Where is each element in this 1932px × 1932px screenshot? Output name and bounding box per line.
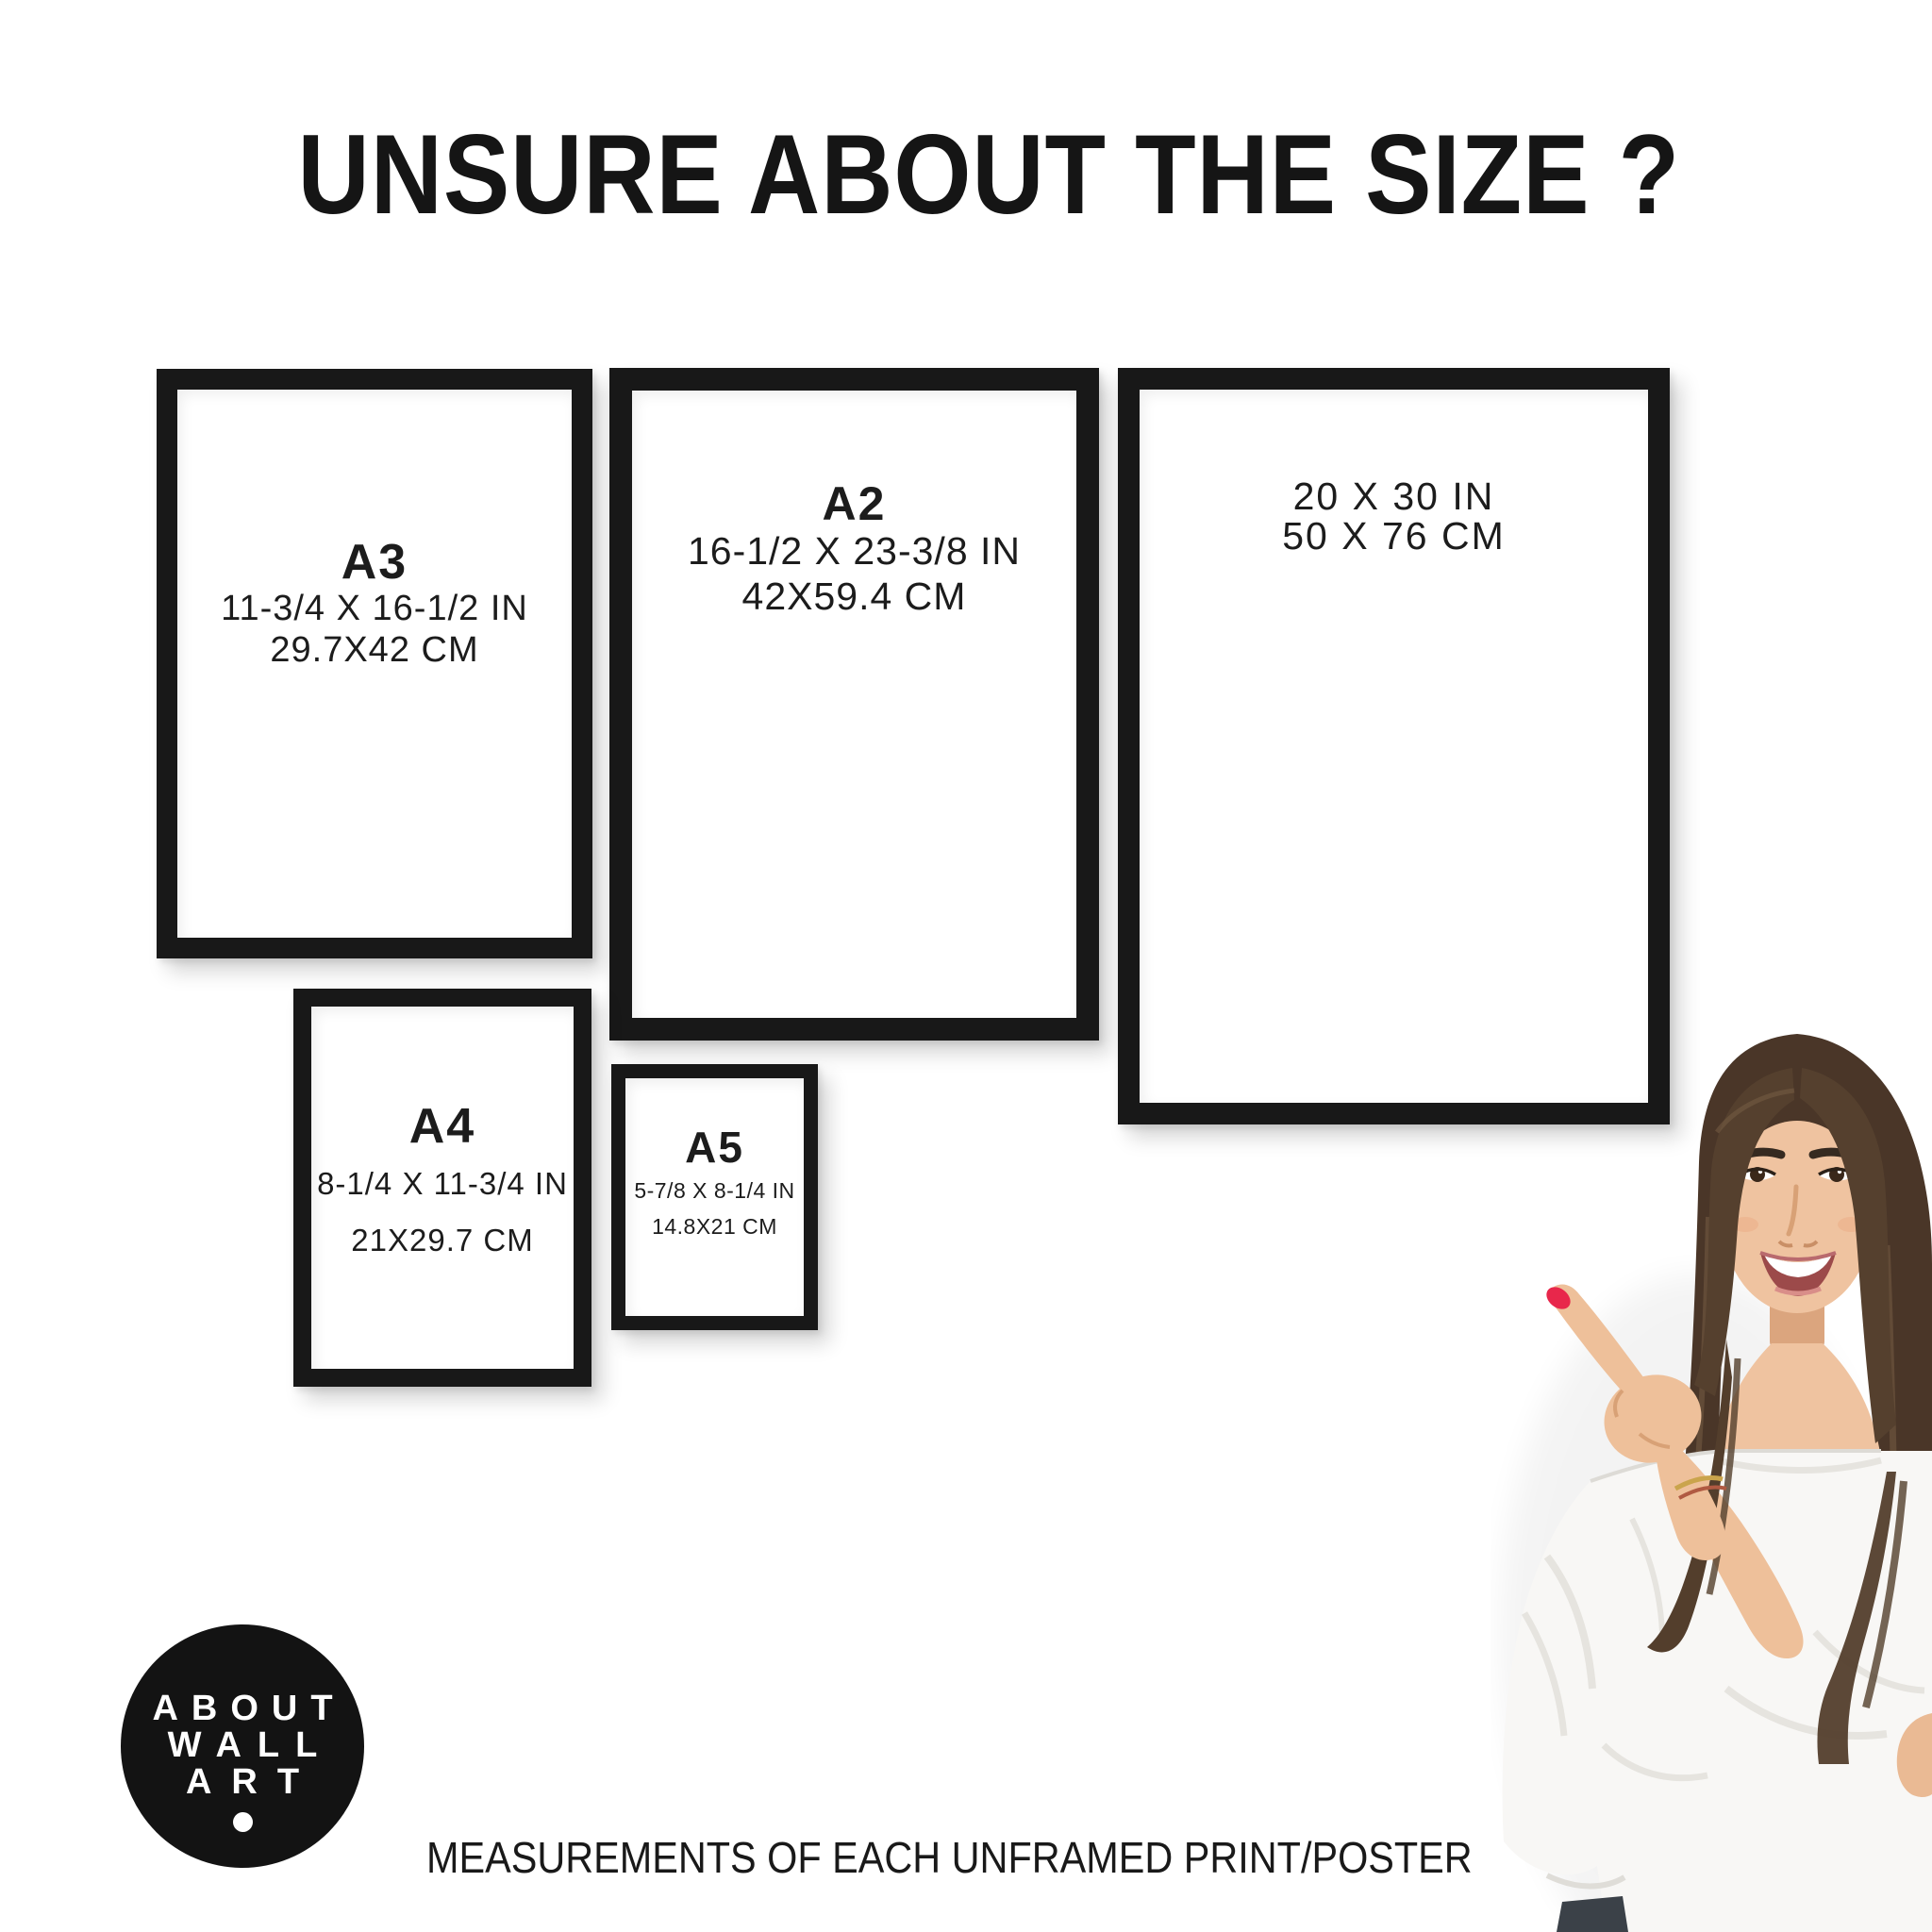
- size-label: A2: [632, 479, 1076, 528]
- logo-text-line: ART: [121, 1764, 364, 1801]
- frame-20x30: 20 X 30 IN 50 X 76 CM: [1118, 368, 1670, 1124]
- logo-dot: [233, 1812, 253, 1832]
- logo-text-line: ABOUT: [121, 1624, 364, 1727]
- frame-a5-text: A5 5-7/8 X 8-1/4 IN 14.8X21 CM: [625, 1122, 804, 1244]
- size-label: A4: [311, 1097, 574, 1156]
- size-inches: 8-1/4 X 11-3/4 IN: [311, 1156, 574, 1212]
- headline: UNSURE ABOUT THE SIZE ?: [298, 109, 1680, 240]
- frame-a2-text: A2 16-1/2 X 23-3/8 IN 42X59.4 CM: [632, 479, 1076, 619]
- frame-a4: A4 8-1/4 X 11-3/4 IN 21X29.7 CM: [293, 989, 591, 1387]
- size-label: A5: [625, 1122, 804, 1173]
- frame-a4-text: A4 8-1/4 X 11-3/4 IN 21X29.7 CM: [311, 1097, 574, 1269]
- size-guide-poster: UNSURE ABOUT THE SIZE ? A3 11-3/4 X 16-1…: [0, 0, 1932, 1932]
- footer-note: MEASUREMENTS OF EACH UNFRAMED PRINT/POST…: [426, 1832, 1473, 1883]
- size-cm: 21X29.7 CM: [311, 1212, 574, 1269]
- frame-a3-text: A3 11-3/4 X 16-1/2 IN 29.7X42 CM: [177, 537, 572, 671]
- size-cm: 42X59.4 CM: [632, 574, 1076, 619]
- frame-a2: A2 16-1/2 X 23-3/8 IN 42X59.4 CM: [609, 368, 1099, 1041]
- size-inches: 11-3/4 X 16-1/2 IN: [177, 588, 572, 629]
- frame-a5: A5 5-7/8 X 8-1/4 IN 14.8X21 CM: [611, 1064, 818, 1330]
- frame-a3: A3 11-3/4 X 16-1/2 IN 29.7X42 CM: [157, 369, 592, 958]
- size-cm: 50 X 76 CM: [1140, 516, 1648, 556]
- size-inches: 16-1/2 X 23-3/8 IN: [632, 528, 1076, 574]
- size-label: A3: [177, 537, 572, 588]
- logo-text-line: WALL: [121, 1727, 364, 1764]
- size-cm: 29.7X42 CM: [177, 629, 572, 671]
- woman-photo: [1491, 1028, 1932, 1932]
- brand-logo: ABOUT WALL ART: [121, 1624, 364, 1868]
- size-inches: 20 X 30 IN: [1140, 476, 1648, 516]
- jeans: [1557, 1896, 1628, 1932]
- size-cm: 14.8X21 CM: [625, 1208, 804, 1244]
- frame-20x30-text: 20 X 30 IN 50 X 76 CM: [1140, 476, 1648, 556]
- headline-wrap: UNSURE ABOUT THE SIZE ?: [0, 109, 1932, 240]
- size-inches: 5-7/8 X 8-1/4 IN: [625, 1173, 804, 1208]
